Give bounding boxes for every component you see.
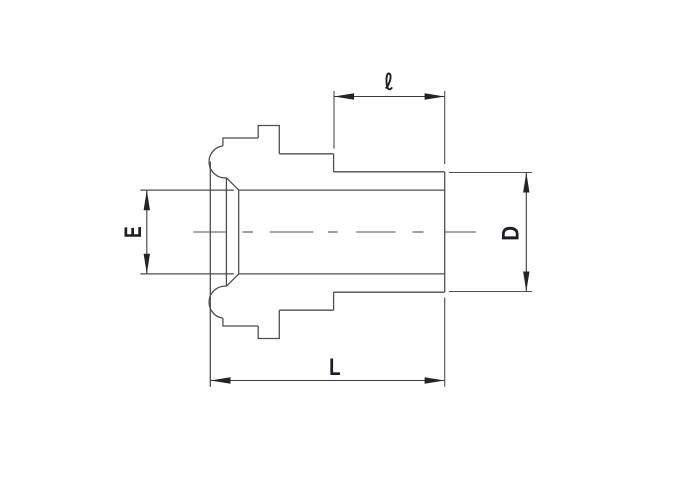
svg-text:D: D: [497, 226, 524, 241]
svg-text:E: E: [120, 226, 146, 238]
svg-text:L: L: [329, 354, 340, 381]
